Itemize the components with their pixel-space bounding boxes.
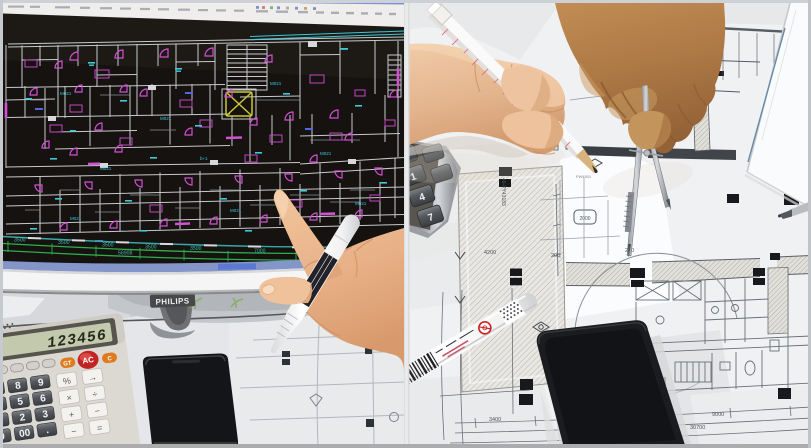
- svg-text:GT: GT: [63, 361, 72, 368]
- svg-text:M021: M021: [230, 208, 242, 213]
- svg-text:200: 200: [551, 253, 560, 259]
- svg-text:9000: 9000: [712, 412, 724, 418]
- svg-text:M021: M021: [270, 81, 282, 86]
- svg-text:M021: M021: [60, 91, 72, 96]
- svg-text:7000: 7000: [254, 249, 266, 255]
- svg-text:M021: M021: [160, 116, 172, 121]
- svg-text:2000: 2000: [579, 216, 590, 222]
- svg-text:M021: M021: [320, 151, 332, 156]
- svg-text:→: →: [87, 372, 97, 383]
- svg-text:M021: M021: [100, 166, 112, 171]
- svg-text:3500: 3500: [58, 240, 70, 246]
- svg-text:%: %: [62, 375, 71, 386]
- svg-text:3400: 3400: [489, 417, 501, 423]
- svg-text:M021: M021: [355, 201, 367, 206]
- svg-text:3500: 3500: [145, 244, 157, 250]
- svg-text:3500: 3500: [190, 246, 202, 252]
- svg-text:AC: AC: [82, 355, 95, 366]
- svg-text:PHILIPS: PHILIPS: [155, 296, 189, 306]
- svg-text:b+1: b+1: [200, 156, 208, 161]
- svg-text:3500: 3500: [14, 238, 26, 244]
- svg-text:56908: 56908: [118, 251, 133, 257]
- svg-text:00: 00: [18, 428, 31, 441]
- svg-text:49-PY43183: 49-PY43183: [500, 178, 506, 206]
- svg-text:M021: M021: [70, 216, 82, 221]
- svg-text:3500: 3500: [102, 242, 114, 248]
- svg-text:30700: 30700: [690, 425, 705, 431]
- svg-text:4200: 4200: [484, 250, 496, 256]
